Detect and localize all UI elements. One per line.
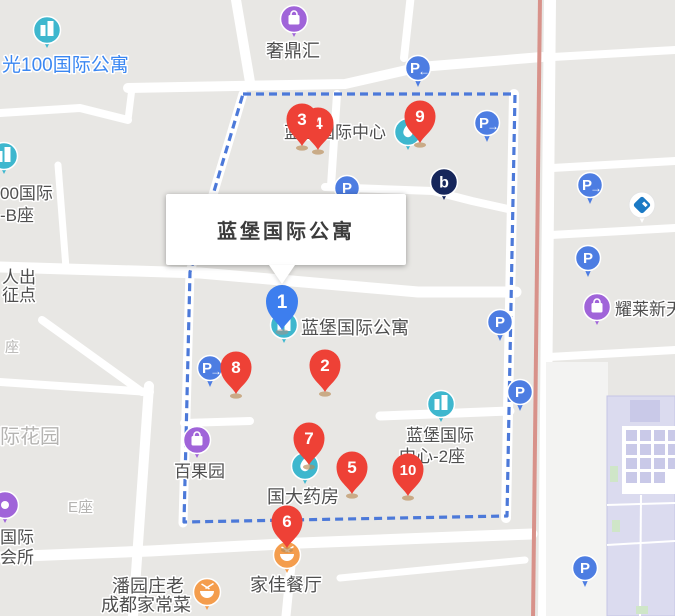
area-label-jihuayuan: 际花园 <box>0 425 60 448</box>
marker-6-number: 6 <box>282 512 291 531</box>
poi-jiajia-restaurant-label[interactable]: 家佳餐厅 <box>250 575 322 595</box>
parking-arrow-right: → <box>210 364 222 378</box>
parking-letter: P <box>580 560 590 577</box>
poi-club-label-1[interactable]: 会所 <box>0 548 34 567</box>
map-canvas[interactable]: 光100国际公寓00国际-B座奢鼎汇蓝堡国际中心蓝堡国际公寓百果园国大药房蓝堡国… <box>0 0 675 616</box>
marker-2-number: 2 <box>320 356 329 375</box>
parking-arrow-left: ← <box>418 64 430 78</box>
marker-shadow <box>296 145 308 150</box>
poi-panyuanzhuang-label-0[interactable]: 潘园庄老 <box>112 576 184 596</box>
marker-shadow <box>319 391 331 396</box>
poi-shedinghui-label[interactable]: 奢鼎汇 <box>266 41 320 61</box>
infobox-popup[interactable]: 蓝堡国际公寓 <box>166 194 406 265</box>
poi-yaolai-label[interactable]: 耀莱新天 <box>615 300 675 319</box>
mall-building <box>607 396 675 616</box>
area-label-ezuo: E座 <box>68 499 93 516</box>
marker-shadow <box>281 547 293 552</box>
marker-10-number: 10 <box>400 462 417 479</box>
marker-9-number: 9 <box>415 107 424 126</box>
marker-shadow <box>276 329 289 335</box>
poi-lanbao-apartment-label[interactable]: 蓝堡国际公寓 <box>301 318 409 338</box>
poi-guoda-pharmacy-label[interactable]: 国大药房 <box>267 487 339 507</box>
brand-b-icon: b <box>439 175 449 192</box>
marker-5-number: 5 <box>347 458 356 477</box>
parking-arrow-right: → <box>487 119 499 133</box>
marker-shadow <box>402 495 414 500</box>
infobox-title: 蓝堡国际公寓 <box>217 215 355 244</box>
marker-1-number: 1 <box>277 292 288 313</box>
marker-8-number: 8 <box>231 358 240 377</box>
marker-shadow <box>303 464 315 469</box>
dot-icon <box>1 501 9 509</box>
map-base[interactable]: 光100国际公寓00国际-B座奢鼎汇蓝堡国际中心蓝堡国际公寓百果园国大药房蓝堡国… <box>0 0 675 616</box>
poi-club-label-0[interactable]: 国际 <box>0 528 34 547</box>
poi-panyuanzhuang-label-1[interactable]: 成都家常菜 <box>101 595 191 615</box>
marker-7-number: 7 <box>304 429 313 448</box>
marker-shadow <box>230 393 242 398</box>
parking-arrow-right: → <box>590 181 602 195</box>
area-label-renchu-1: 征点 <box>2 286 36 305</box>
marker-shadow <box>414 142 426 147</box>
area-label-renchu-0: 人出 <box>2 268 36 287</box>
poi-lanbao-center-2-label-0[interactable]: 蓝堡国际 <box>406 426 474 445</box>
marker-3-number: 3 <box>297 110 306 129</box>
poi-bzuo-complex-label-1[interactable]: -B座 <box>0 206 34 225</box>
poi-baiguoyuan-label[interactable]: 百果园 <box>174 462 225 481</box>
parking-letter: P <box>495 314 505 331</box>
marker-shadow <box>312 149 324 154</box>
parking-letter: P <box>583 250 593 267</box>
area-label-zuo: 座 <box>5 339 19 355</box>
infobox-arrow <box>269 265 295 284</box>
poi-guang100-label[interactable]: 光100国际公寓 <box>2 54 129 76</box>
marker-shadow <box>346 493 358 498</box>
poi-bzuo-complex-label-0[interactable]: 00国际 <box>0 184 53 203</box>
parking-letter: P <box>515 384 525 401</box>
